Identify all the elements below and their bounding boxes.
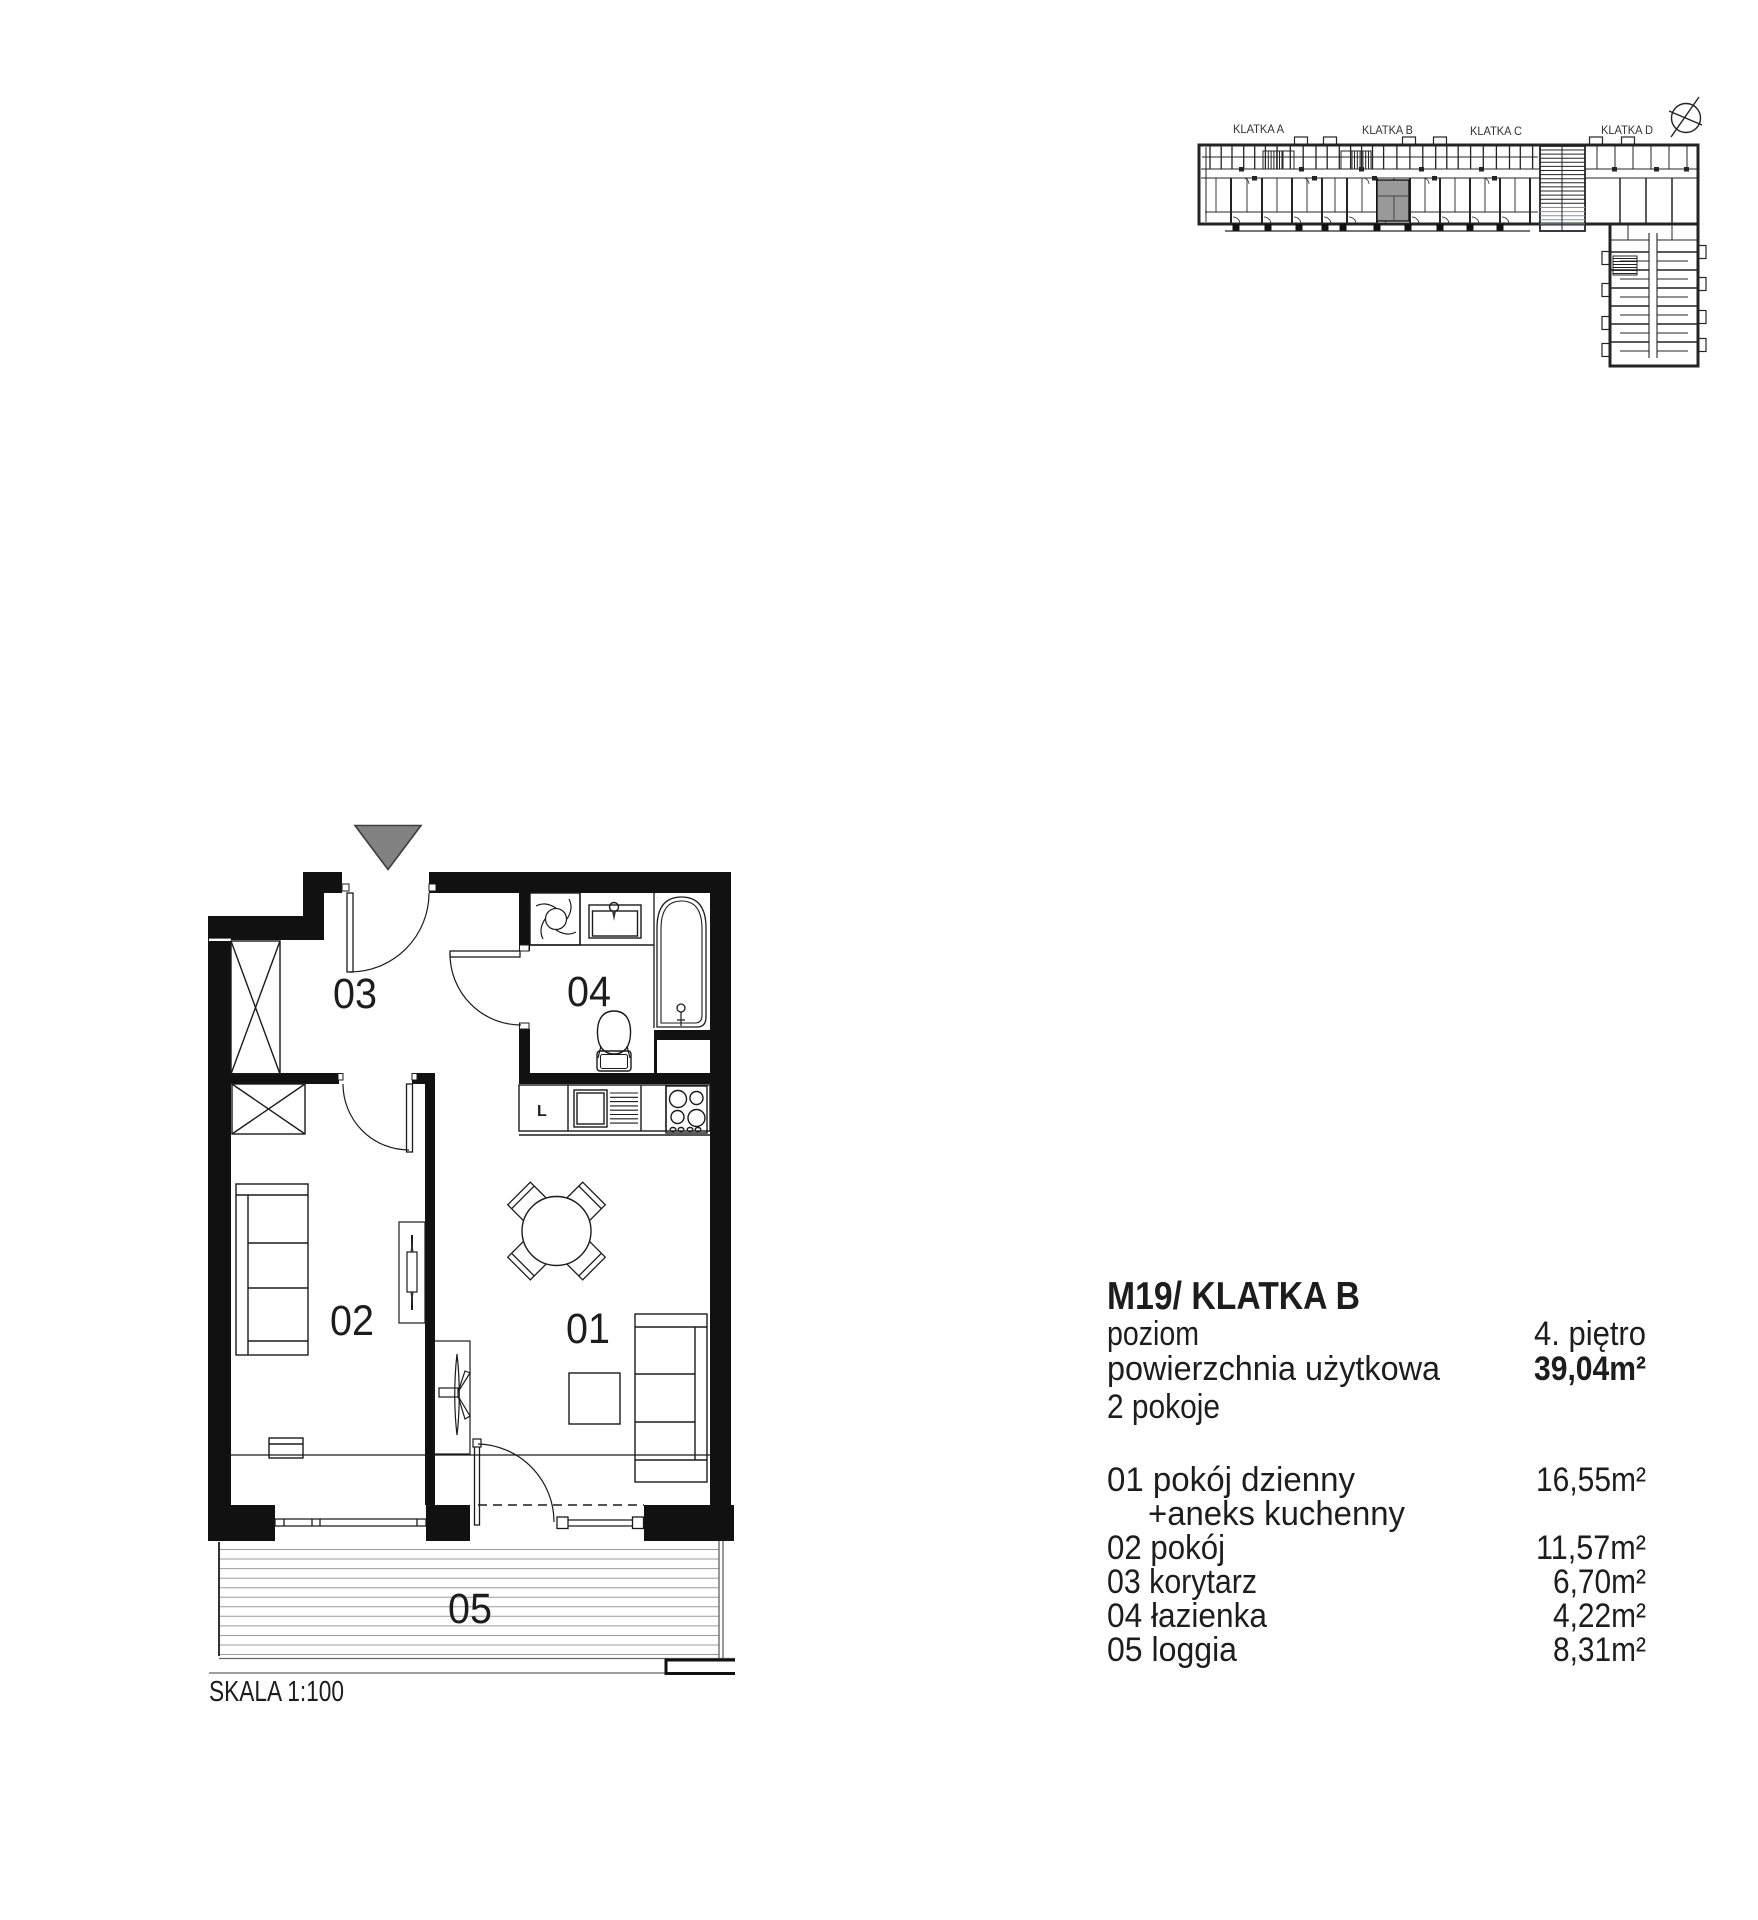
svg-text:05 loggia: 05 loggia [1107, 1631, 1237, 1669]
svg-text:KLATKA B: KLATKA B [1362, 125, 1413, 137]
svg-text:2 pokoje: 2 pokoje [1107, 1388, 1220, 1426]
svg-text:02: 02 [330, 1297, 374, 1345]
svg-text:04 łazienka: 04 łazienka [1107, 1597, 1267, 1635]
svg-text:8,31m²: 8,31m² [1553, 1631, 1646, 1669]
svg-text:KLATKA C: KLATKA C [1470, 126, 1522, 138]
svg-text:L: L [537, 1103, 547, 1120]
svg-text:KLATKA A: KLATKA A [1233, 124, 1284, 136]
svg-text:6,70m²: 6,70m² [1553, 1563, 1646, 1601]
svg-text:02 pokój: 02 pokój [1107, 1529, 1225, 1567]
svg-text:4,22m²: 4,22m² [1553, 1597, 1646, 1635]
svg-text:16,55m²: 16,55m² [1536, 1461, 1646, 1499]
svg-text:powierzchnia użytkowa: powierzchnia użytkowa [1107, 1350, 1440, 1388]
svg-text:KLATKA D: KLATKA D [1601, 125, 1653, 137]
svg-text:03: 03 [333, 970, 377, 1018]
svg-text:+aneks kuchenny: +aneks kuchenny [1148, 1495, 1405, 1533]
svg-text:4. piętro: 4. piętro [1534, 1315, 1646, 1353]
svg-text:poziom: poziom [1107, 1315, 1199, 1353]
svg-text:39,04m²: 39,04m² [1534, 1350, 1646, 1388]
svg-text:05: 05 [448, 1585, 492, 1633]
svg-text:11,57m²: 11,57m² [1536, 1529, 1646, 1567]
svg-text:03 korytarz: 03 korytarz [1107, 1563, 1257, 1601]
svg-text:M19/ KLATKA B: M19/ KLATKA B [1107, 1275, 1360, 1318]
svg-text:SKALA 1:100: SKALA 1:100 [209, 1676, 344, 1708]
svg-text:01 pokój dzienny: 01 pokój dzienny [1107, 1461, 1355, 1499]
svg-text:01: 01 [566, 1305, 610, 1353]
svg-text:04: 04 [567, 968, 611, 1016]
